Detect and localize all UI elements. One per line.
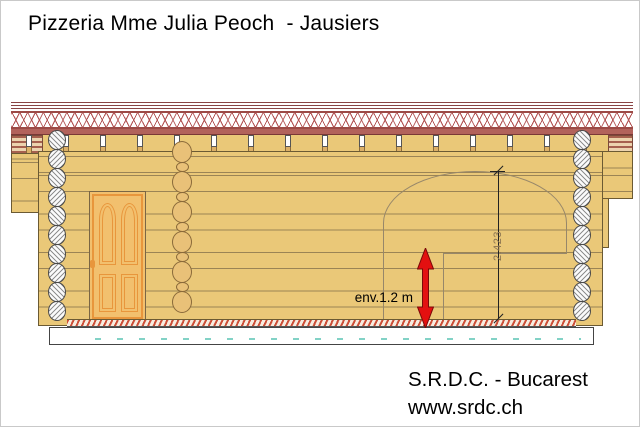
carved-column-middle xyxy=(172,141,192,313)
rafter-post xyxy=(26,135,32,155)
drawing-title: Pizzeria Mme Julia Peoch - Jausiers xyxy=(28,12,380,36)
foundation-slab xyxy=(49,327,594,345)
door-panel-bottom-right xyxy=(121,274,138,312)
door-panel-bottom-left xyxy=(99,274,116,312)
log-ends-right xyxy=(602,151,633,199)
foundation-dashed-line xyxy=(95,338,581,340)
carved-column-left xyxy=(48,131,66,321)
sill-hatch-strip xyxy=(67,319,576,327)
height-arrow-label: env.1.2 m xyxy=(313,290,413,305)
door-panel-top-right xyxy=(121,203,138,265)
log-ends-left xyxy=(11,153,39,213)
roof-layers xyxy=(11,102,633,111)
footer-company: S.R.D.C. - Bucarest xyxy=(408,366,588,394)
log-ends-right-stub xyxy=(602,199,609,248)
carved-column-right xyxy=(573,131,591,321)
entrance-door xyxy=(89,191,146,322)
dimension-value: 2.423 xyxy=(492,221,504,271)
oven-outline-step-edge xyxy=(443,253,444,319)
elevation-drawing-canvas: Pizzeria Mme Julia Peoch - Jausiers xyxy=(0,0,640,427)
footer: S.R.D.C. - Bucarest www.srdc.ch xyxy=(408,366,588,422)
oven-outline-right-edge xyxy=(566,223,567,253)
oven-outline-ledge xyxy=(443,253,567,254)
door-handle xyxy=(90,260,95,268)
door-panel-top-left xyxy=(99,203,116,265)
door-leaf xyxy=(92,194,143,319)
footer-website: www.srdc.ch xyxy=(408,394,588,422)
height-arrow-icon xyxy=(417,248,434,328)
roof-insulation-lattice xyxy=(11,111,633,129)
